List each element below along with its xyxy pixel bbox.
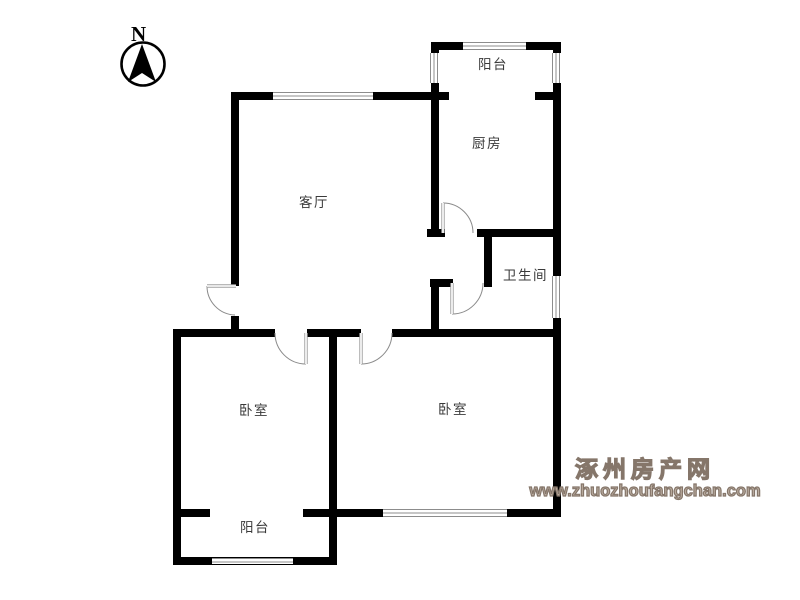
room-label-bathroom: 卫生间 <box>503 268 548 284</box>
window-bathroom-right <box>552 276 561 318</box>
wall-middle-left <box>173 329 275 337</box>
room-label-kitchen: 厨房 <box>472 136 502 152</box>
wall-middle-right <box>392 329 561 337</box>
compass-north-label: N <box>131 22 146 47</box>
wall-living-left-lower <box>231 316 239 337</box>
room-label-balcony-bottom: 阳台 <box>240 520 270 536</box>
wall-balcony2-divider-left <box>177 509 210 517</box>
watermark: 涿州房产网 www.zhuozhoufangchan.com <box>518 456 772 501</box>
compass-icon <box>122 43 165 86</box>
wall-living-left-upper <box>231 92 239 286</box>
watermark-site-url: www.zhuozhoufangchan.com <box>518 482 772 501</box>
window-balcony-bottom <box>212 558 293 564</box>
wall-bedroom-divider <box>329 329 337 565</box>
window-balcony-top-left <box>430 53 439 83</box>
watermark-site-name: 涿州房产网 <box>518 456 772 482</box>
door-entry <box>207 286 236 315</box>
room-label-balcony-top: 阳台 <box>478 57 508 73</box>
window-bedroom-right-bottom <box>383 509 507 517</box>
door-bedroom-right <box>361 333 392 364</box>
room-label-bedroom-left: 卧室 <box>239 403 269 419</box>
wall-living-right-lower <box>431 279 439 337</box>
wall-bathroom-left <box>484 229 492 287</box>
window-living-top <box>273 92 373 100</box>
door-bedroom-left <box>275 333 306 364</box>
room-label-bedroom-right: 卧室 <box>438 402 468 418</box>
window-balcony-top <box>463 42 526 50</box>
wall-bedroom-right-bottom-left <box>337 509 383 517</box>
room-label-living-room: 客厅 <box>299 195 329 211</box>
wall-bedroom-left-west <box>173 329 181 565</box>
floor-plan-canvas: N 阳台 厨房 客厅 卫生间 卧室 卧室 阳台 涿州房产网 www.zhuozh… <box>0 0 800 600</box>
door-kitchen <box>443 203 473 233</box>
window-balcony-top-right <box>552 53 561 83</box>
door-bathroom <box>452 283 483 314</box>
